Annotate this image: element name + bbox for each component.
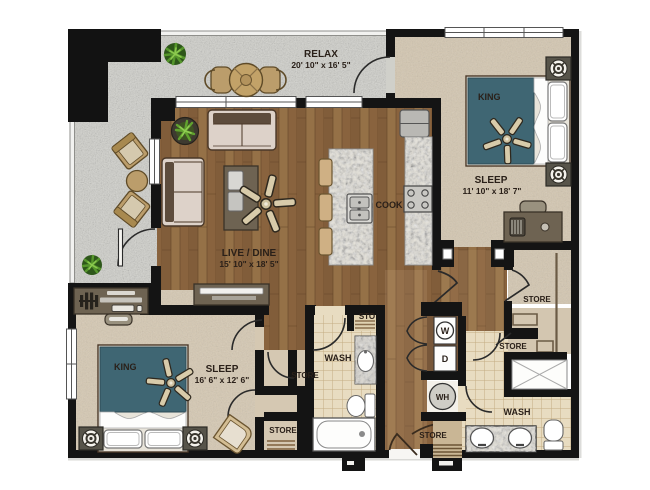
- svg-text:KING: KING: [114, 362, 137, 372]
- svg-text:LIVE / DINE: LIVE / DINE: [222, 248, 277, 259]
- svg-text:STORE: STORE: [523, 295, 551, 304]
- svg-text:20' 10" x 16' 5": 20' 10" x 16' 5": [291, 60, 350, 70]
- svg-text:RELAX: RELAX: [304, 49, 338, 60]
- svg-text:11' 10" x 18' 7": 11' 10" x 18' 7": [463, 186, 522, 196]
- svg-text:W: W: [441, 326, 450, 336]
- svg-text:KING: KING: [478, 92, 501, 102]
- svg-text:16' 6" x 12' 6": 16' 6" x 12' 6": [195, 375, 250, 385]
- svg-text:STORE: STORE: [291, 371, 319, 380]
- svg-text:15' 10" x 18' 5": 15' 10" x 18' 5": [219, 259, 278, 269]
- svg-text:STORE: STORE: [419, 431, 447, 440]
- svg-text:SLEEP: SLEEP: [206, 364, 239, 375]
- svg-text:STORE: STORE: [499, 342, 527, 351]
- svg-text:STORE: STORE: [269, 426, 297, 435]
- svg-text:WASH: WASH: [325, 353, 352, 363]
- svg-text:STO: STO: [359, 312, 375, 321]
- svg-text:WASH: WASH: [504, 407, 531, 417]
- svg-text:D: D: [442, 354, 449, 364]
- svg-text:WH: WH: [436, 393, 450, 402]
- svg-text:COOK: COOK: [376, 200, 404, 210]
- svg-text:SLEEP: SLEEP: [475, 175, 508, 186]
